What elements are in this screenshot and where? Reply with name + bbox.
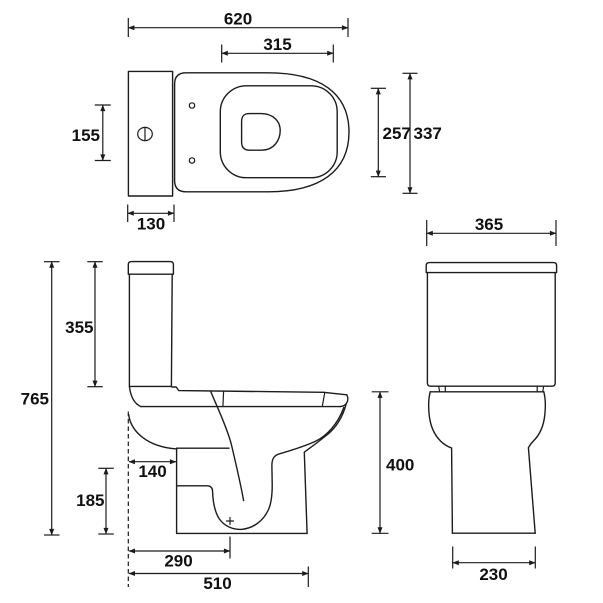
dim-label-365: 365 — [475, 215, 503, 234]
dim-label-510: 510 — [203, 574, 231, 593]
toilet-technical-drawing: 620 315 155 257 337 — [0, 0, 603, 603]
dim-label-257: 257 — [383, 124, 411, 143]
drawing-canvas: 620 315 155 257 337 — [0, 0, 603, 603]
dim-label-140: 140 — [138, 462, 166, 481]
side-seat-hinge-mark — [223, 391, 224, 406]
dim-label-400: 400 — [386, 456, 414, 475]
dim-label-185: 185 — [76, 491, 104, 510]
dim-label-290: 290 — [164, 552, 192, 571]
dim-label-155: 155 — [72, 126, 100, 145]
dim-label-315: 315 — [263, 35, 291, 54]
dim-label-230: 230 — [479, 565, 507, 584]
dim-label-620: 620 — [224, 10, 252, 29]
background — [0, 0, 603, 603]
dim-label-130: 130 — [137, 215, 165, 234]
dim-label-765: 765 — [21, 390, 49, 409]
dim-label-337: 337 — [414, 124, 442, 143]
dim-label-355: 355 — [65, 318, 93, 337]
